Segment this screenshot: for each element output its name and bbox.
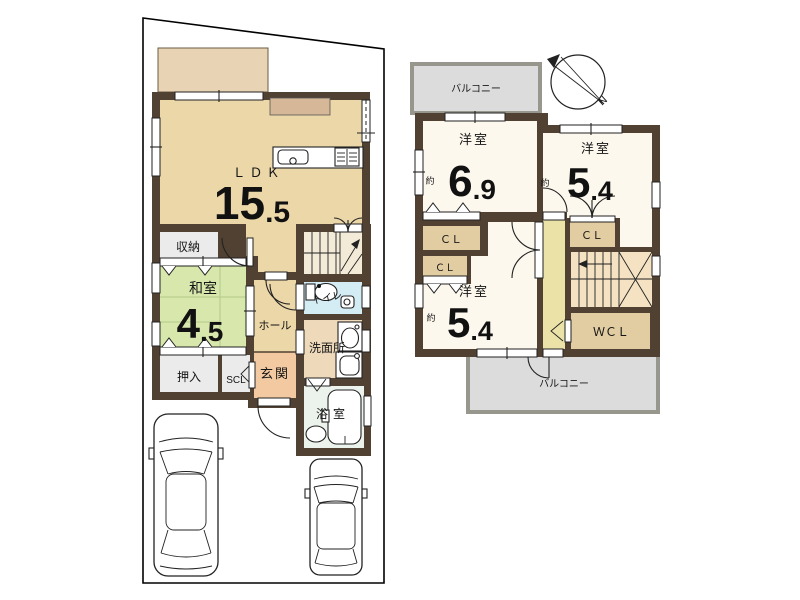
balcony-bottom-label: バルコニー	[539, 378, 589, 390]
room-hall2f	[543, 220, 565, 349]
bedroom2-approx: 約	[540, 177, 549, 188]
bedroom2-label: 洋室	[581, 141, 611, 156]
floorplan-svg: ＬＤＫ 15.5 収納 和室 4.5 押入 SCL 玄関 ホール トイレ 洗面所…	[0, 0, 800, 600]
kitchen-alcove	[270, 98, 330, 115]
scl-label: SCL	[226, 375, 246, 386]
room-bedroom3a	[488, 222, 537, 349]
car-large	[149, 414, 223, 576]
bedroom3-approx: 約	[426, 312, 435, 323]
room-scl	[222, 355, 250, 392]
storage-label: 収納	[176, 240, 200, 254]
washroom-label: 洗面所	[309, 341, 345, 355]
balcony-top-label: バルコニー	[451, 83, 501, 95]
bedroom3-label: 洋室	[459, 284, 489, 299]
bedroom1-label: 洋室	[459, 132, 489, 147]
terrace	[158, 48, 268, 92]
floorplan-canvas: ＬＤＫ 15.5 収納 和室 4.5 押入 SCL 玄関 ホール トイレ 洗面所…	[0, 0, 800, 600]
floor1-plan: ＬＤＫ 15.5 収納 和室 4.5 押入 SCL 玄関 ホール トイレ 洗面所…	[150, 48, 375, 456]
oshiire-label: 押入	[177, 370, 201, 384]
closet2-label: ＣＬ	[435, 263, 455, 274]
kitchen-counter	[273, 147, 363, 168]
closet1-label: ＣＬ	[440, 234, 462, 246]
washitsu-label: 和室	[189, 280, 217, 296]
hall-label: ホール	[259, 319, 292, 332]
room-ldk-opening2	[258, 256, 296, 272]
floor2-plan: バルコニー 洋室 約 6.9 洋室 約 5.4 洋室 約 5.4 ＣＬ ＣＬ Ｃ…	[412, 54, 660, 412]
closet3-label: ＣＬ	[581, 230, 603, 242]
bedroom1-approx: 約	[425, 175, 434, 186]
room-hall	[254, 280, 296, 352]
room-bedroom2-ext2	[620, 133, 652, 247]
compass-icon: N	[547, 54, 610, 109]
compass-n-label: N	[596, 94, 610, 108]
genkan-label: 玄関	[260, 366, 290, 381]
wcl-label: ＷＣＬ	[593, 325, 629, 339]
room-stairs-2f	[571, 252, 652, 307]
car-small	[305, 459, 367, 575]
bathroom-label: 浴室	[316, 406, 350, 421]
